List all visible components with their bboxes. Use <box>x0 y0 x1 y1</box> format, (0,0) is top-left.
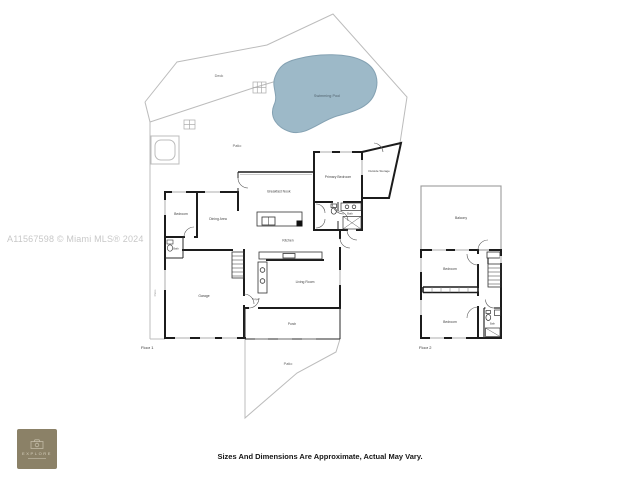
bath1-fixtures <box>331 203 361 229</box>
deck-edge-line <box>150 80 280 122</box>
room-label-primary-bedroom: Primary Bedroom <box>325 175 352 179</box>
left-patio-label: Patio <box>153 289 157 296</box>
island-stove <box>297 221 303 227</box>
deck-steps <box>253 82 266 93</box>
room-label-breakfast-nook: Breakfast Nook <box>267 190 290 194</box>
room-label-porch: Porch <box>288 322 297 326</box>
room-label-bath-left: Bath <box>173 247 179 251</box>
property-line-left-jog <box>145 102 150 122</box>
breakfast-nook-window-wall <box>238 172 314 174</box>
floor1-door-arcs <box>184 143 383 308</box>
room-label-outside-storage: Outside Storage <box>368 169 390 173</box>
logo-icon <box>30 439 44 449</box>
logo-divider <box>28 458 46 459</box>
upper-patio-label: Patio <box>233 144 242 148</box>
stairs-floor1 <box>232 252 244 278</box>
room-label-living-room: Living Room <box>296 280 315 284</box>
brand-logo: EXPLORE <box>17 429 57 469</box>
room-label-bath2: Bath <box>490 323 496 326</box>
room-label-kitchen: Kitchen <box>282 239 293 243</box>
room-label-dining: Dining Area <box>209 217 227 221</box>
logo-brand-text: EXPLORE <box>22 451 52 456</box>
room-label-garage: Garage <box>198 294 209 298</box>
patio-steps <box>184 120 195 129</box>
floorplan-image: Deck Patio Swimming Pool Patio Patio Bed… <box>0 0 640 480</box>
stairs-floor2 <box>488 264 501 287</box>
room-label-foyer: Foyer <box>252 297 259 301</box>
floor2-walls <box>421 186 501 338</box>
floor1-windows <box>165 152 362 339</box>
room-label-bath1: Bath <box>347 212 353 216</box>
room-label-balcony: Balcony <box>455 216 467 220</box>
floor2-windows <box>421 250 501 338</box>
room-label-bedroom: Bedroom <box>174 212 188 216</box>
room-label-bedroom-1: Bedroom <box>443 267 457 271</box>
bath-left-fixtures <box>167 240 173 251</box>
pool-label: Swimming Pool <box>314 94 340 98</box>
lower-patio-label: Patio <box>284 362 293 366</box>
floor2-name: Floor 2 <box>419 345 432 350</box>
disclaimer-text: Sizes And Dimensions Are Approximate, Ac… <box>0 452 640 461</box>
room-label-bedroom-2: Bedroom <box>443 320 457 324</box>
mls-watermark: A11567598 © Miami MLS® 2024 <box>7 234 144 244</box>
lower-patio-outline <box>245 339 340 418</box>
floor1-name: Floor 1 <box>141 345 154 350</box>
deck-label: Deck <box>215 74 224 78</box>
spa <box>151 136 179 164</box>
